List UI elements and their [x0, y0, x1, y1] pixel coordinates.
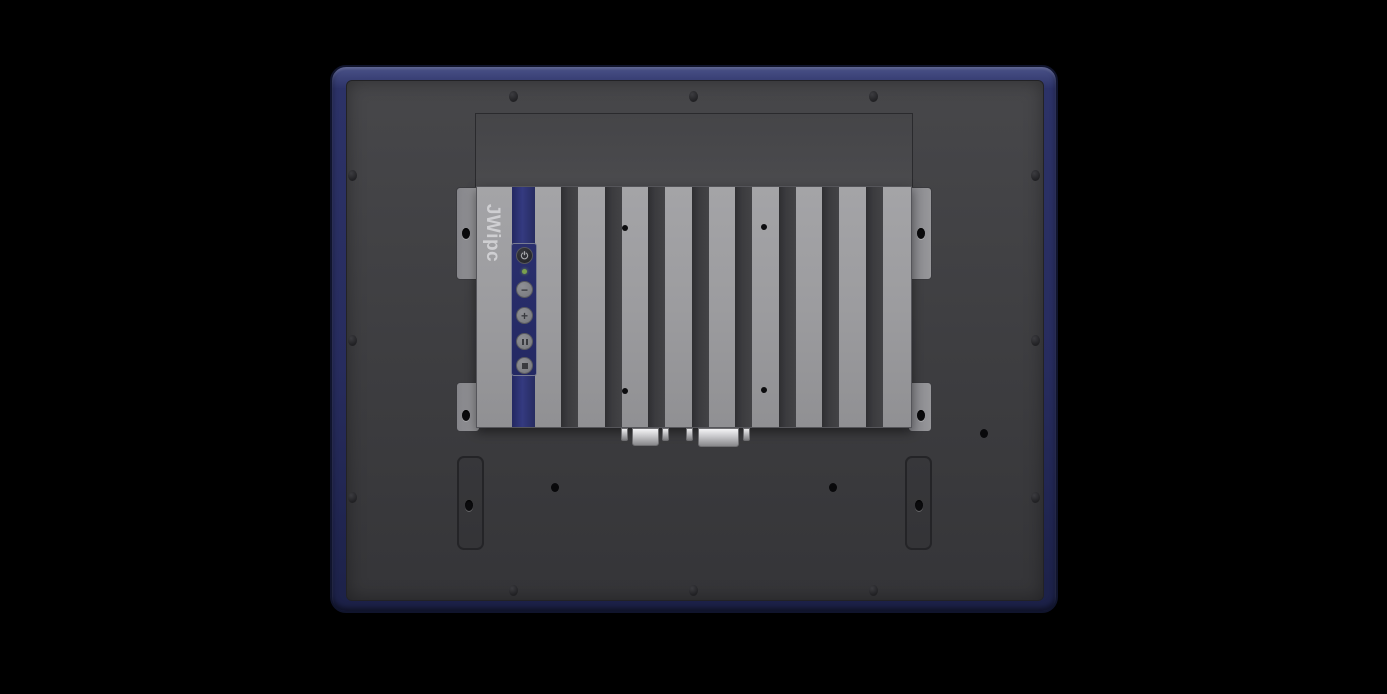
menu-button — [516, 333, 533, 350]
db9-screw-post — [662, 428, 669, 441]
minus-icon: − — [521, 284, 528, 296]
screw-hole — [551, 483, 559, 492]
heatsink-fin-slot — [735, 187, 752, 427]
power-icon — [520, 251, 529, 260]
screw-hole — [980, 429, 988, 438]
brand-logo: JWipc — [481, 192, 503, 274]
mounting-plate — [475, 113, 913, 193]
select-button — [516, 357, 533, 374]
cover-screw — [869, 585, 878, 596]
osd-control-panel: − + — [511, 243, 537, 376]
module-screw — [761, 224, 767, 230]
ear-screw-hole — [462, 228, 470, 239]
module-screw — [622, 388, 628, 394]
cover-screw — [1031, 335, 1040, 346]
heatsink-fin-slot — [561, 187, 578, 427]
module-screw — [761, 387, 767, 393]
serial-db9-connector — [632, 428, 659, 446]
heatsink-fin-slot — [648, 187, 665, 427]
embedded-box-pc: JWipc − + — [476, 186, 912, 428]
plus-icon: + — [521, 310, 528, 322]
ear-screw-hole — [462, 410, 470, 421]
screw-hole — [829, 483, 837, 492]
vga-db15-connector — [698, 428, 739, 447]
heatsink-fin-slot — [866, 187, 883, 427]
cover-screw — [509, 585, 518, 596]
menu-icon — [522, 339, 528, 345]
heatsink-fin-slot — [822, 187, 839, 427]
ear-screw-hole — [917, 228, 925, 239]
vga-screw-post — [686, 428, 693, 441]
plate-screw-hole — [465, 500, 473, 511]
brightness-down-button: − — [516, 281, 533, 298]
cover-screw — [689, 585, 698, 596]
vga-screw-post — [743, 428, 750, 441]
cover-screw — [1031, 492, 1040, 503]
db9-screw-post — [621, 428, 628, 441]
power-led — [522, 269, 527, 274]
ear-screw-hole — [917, 410, 925, 421]
heatsink-fin-slot — [605, 187, 622, 427]
square-icon — [522, 363, 528, 369]
heatsink-fin-slot — [692, 187, 709, 427]
cover-screw — [869, 91, 878, 102]
plate-screw-hole — [915, 500, 923, 511]
cover-screw — [509, 91, 518, 102]
cover-screw — [348, 492, 357, 503]
power-button — [516, 247, 533, 264]
brightness-up-button: + — [516, 307, 533, 324]
product-photo: JWipc − + — [0, 0, 1387, 694]
heatsink-fin-slot — [779, 187, 796, 427]
cover-screw — [348, 170, 357, 181]
cover-screw — [348, 335, 357, 346]
cover-screw — [689, 91, 698, 102]
module-screw — [622, 225, 628, 231]
cover-screw — [1031, 170, 1040, 181]
